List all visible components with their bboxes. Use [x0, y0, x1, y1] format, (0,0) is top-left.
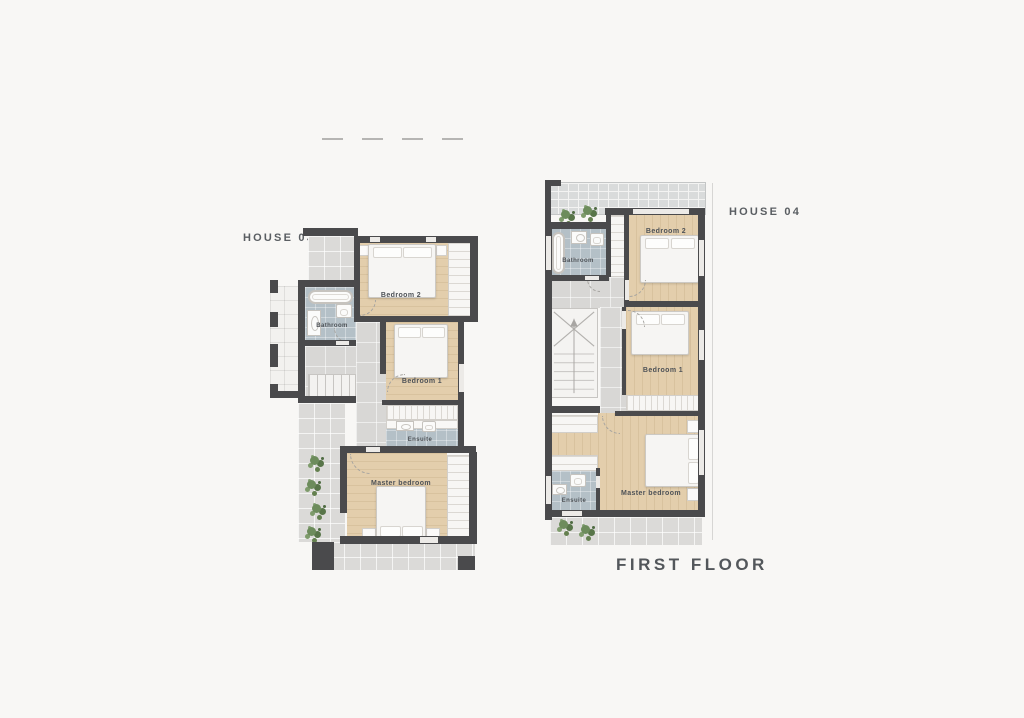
- window: [699, 240, 704, 276]
- window: [426, 237, 436, 242]
- house03-ensuite-toilet: [422, 421, 436, 432]
- house03-bathroom-label: Bathroom: [316, 323, 348, 329]
- floor-title: FIRST FLOOR: [616, 555, 768, 575]
- wall: [545, 275, 609, 281]
- house04-bedroom1-wardrobe: [626, 395, 702, 411]
- boundary-dash: [362, 138, 383, 140]
- door-opening: [622, 311, 626, 329]
- house03-top-terrace-floor: [308, 236, 356, 284]
- house03-bedroom1-wardrobe: [386, 405, 458, 420]
- wall: [624, 301, 702, 307]
- wall: [270, 391, 300, 398]
- window: [546, 476, 551, 504]
- door-opening: [562, 511, 582, 516]
- house04-ensuite-sink: [552, 484, 567, 495]
- plant: [310, 456, 319, 465]
- house04-master-bed: [645, 434, 702, 487]
- house04-master-bedroom-floor-ext: [550, 433, 598, 455]
- wall: [298, 280, 356, 287]
- house03-plan: Bedroom 2 Bathroom Bedroom 1 Ensuite Mas…: [270, 228, 478, 573]
- wall: [270, 312, 278, 327]
- door-opening: [336, 341, 349, 345]
- house03-balcony-floor: [270, 286, 298, 394]
- door-opening: [625, 280, 629, 300]
- boundary-dash: [322, 138, 343, 140]
- wall: [382, 400, 462, 405]
- door-opening: [366, 447, 380, 452]
- plot-boundary-line: [712, 183, 713, 540]
- house04-bathroom-label: Bathroom: [562, 258, 594, 264]
- house04-master-bedroom-label: Master bedroom: [621, 490, 681, 497]
- house04-left-wardrobe-1: [550, 415, 598, 433]
- house04-bedroom1-label: Bedroom 1: [643, 367, 683, 374]
- house03-bottom-terrace-floor: [312, 542, 475, 570]
- door-opening: [585, 276, 599, 280]
- window: [459, 364, 464, 392]
- house03-ensuite-label: Ensuite: [408, 437, 432, 443]
- wall: [470, 242, 478, 322]
- window: [699, 430, 704, 475]
- house04-label: HOUSE 04: [729, 206, 801, 218]
- house03-toilet: [336, 304, 352, 318]
- wall: [303, 228, 358, 236]
- house04-bedroom2-bed: [640, 235, 699, 283]
- plant: [561, 210, 570, 219]
- wall: [596, 468, 600, 512]
- window: [633, 209, 689, 214]
- house03-bedroom2-bed: [368, 244, 436, 298]
- wall: [615, 411, 702, 416]
- wall: [270, 280, 278, 293]
- house03-bedroom1-label: Bedroom 1: [402, 378, 442, 385]
- plant: [581, 525, 590, 534]
- door-opening: [596, 476, 600, 488]
- wall: [340, 453, 347, 513]
- door-opening: [420, 537, 438, 543]
- house03-side-terrace-floor: [298, 403, 345, 542]
- house04-stairs: [550, 308, 598, 398]
- house04-bathtub: [552, 232, 565, 274]
- plant: [312, 504, 321, 513]
- stairs-markings: [551, 309, 597, 397]
- house03-ensuite-sink: [396, 421, 414, 431]
- floor-plan-page: { "title": "FIRST FLOOR", "house03": { "…: [0, 0, 1024, 718]
- house03-bedroom2-label: Bedroom 2: [381, 292, 421, 299]
- wall: [298, 280, 305, 402]
- wall: [469, 452, 477, 542]
- boundary-dash: [442, 138, 463, 140]
- house04-bathroom-sink: [571, 231, 587, 244]
- boundary-dash: [402, 138, 423, 140]
- house04-bedroom2-label: Bedroom 2: [646, 228, 686, 235]
- wall: [545, 222, 609, 229]
- window: [699, 330, 704, 360]
- plant: [307, 527, 316, 536]
- wall: [270, 344, 278, 367]
- wall: [606, 215, 611, 277]
- window: [370, 237, 380, 242]
- house03-master-bed: [376, 486, 426, 540]
- house04-bottom-terrace-floor: [550, 517, 702, 545]
- house04-plan: Bedroom 2 Bathroom Bedroom 1 Ensuite Mas…: [545, 180, 707, 547]
- house04-ensuite-label: Ensuite: [562, 498, 586, 504]
- wall: [545, 180, 551, 226]
- wall: [340, 536, 477, 544]
- wall: [354, 236, 360, 322]
- wall: [458, 556, 475, 570]
- wall: [380, 322, 386, 374]
- wall: [356, 316, 474, 322]
- house03-bathtub: [308, 290, 353, 304]
- wall: [312, 542, 334, 570]
- wall: [545, 406, 600, 413]
- house03-bedroom1-bed: [394, 324, 448, 378]
- house04-ensuite-toilet: [570, 474, 586, 487]
- wall: [298, 396, 356, 403]
- house03-bedroom2-nightstand: [436, 245, 447, 256]
- plant: [559, 520, 568, 529]
- plant: [583, 206, 592, 215]
- house03-master-bedroom-label: Master bedroom: [371, 480, 431, 487]
- house04-toilet: [590, 233, 604, 246]
- house04-left-wardrobe-2: [550, 455, 598, 471]
- window: [546, 236, 551, 270]
- plant: [307, 480, 316, 489]
- wall: [340, 446, 476, 453]
